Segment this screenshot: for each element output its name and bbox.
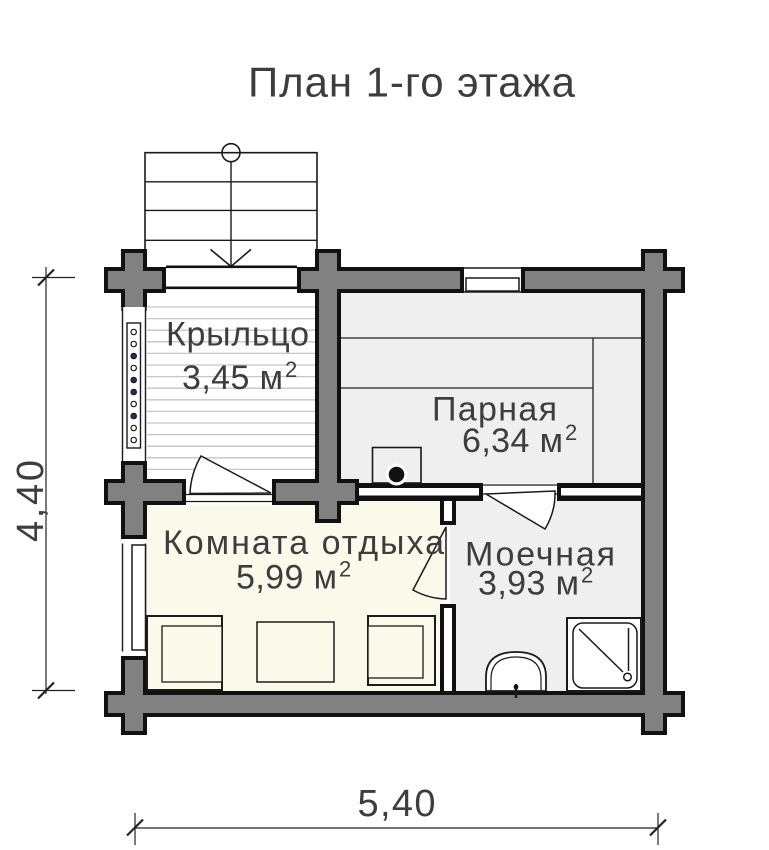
- svg-text:6,34 м: 6,34 м: [462, 422, 563, 460]
- svg-text:План 1-го этажа: План 1-го этажа: [248, 59, 576, 106]
- svg-text:Крыльцо: Крыльцо: [166, 316, 309, 354]
- svg-text:Комната отдыха: Комната отдыха: [163, 524, 444, 562]
- svg-text:4,40: 4,40: [10, 460, 52, 542]
- svg-text:3,45 м: 3,45 м: [182, 359, 283, 397]
- svg-text:2: 2: [565, 420, 577, 445]
- svg-text:2: 2: [581, 563, 593, 588]
- svg-text:5,40: 5,40: [358, 783, 436, 825]
- svg-text:2: 2: [285, 357, 297, 382]
- svg-text:5,99 м: 5,99 м: [236, 559, 337, 597]
- svg-text:2: 2: [339, 557, 351, 582]
- svg-text:3,93 м: 3,93 м: [478, 565, 579, 603]
